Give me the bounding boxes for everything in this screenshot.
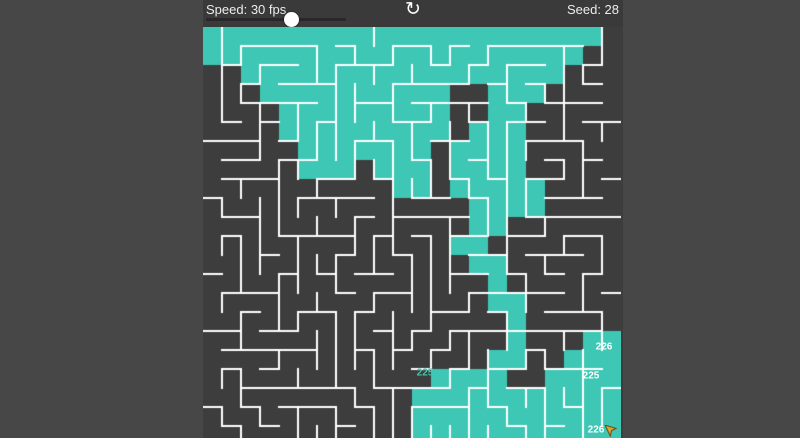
slider-thumb[interactable] [284, 12, 299, 27]
slider-track[interactable] [206, 18, 346, 21]
seed-label: Seed: 28 [567, 2, 619, 17]
maze-viewport: 226225225226 [203, 27, 623, 438]
maze-app-window: Speed: 30 fps ↻ Seed: 28 226225225226 [203, 0, 623, 438]
maze-canvas[interactable] [203, 27, 621, 438]
toolbar: Speed: 30 fps ↻ Seed: 28 [203, 0, 623, 27]
speed-slider[interactable] [203, 0, 363, 27]
step-count-label: 226 [588, 425, 605, 436]
step-count-label: 226 [596, 342, 613, 353]
step-count-label: 225 [583, 371, 600, 382]
refresh-icon[interactable]: ↻ [405, 0, 421, 21]
step-count-label: 225 [417, 368, 434, 379]
